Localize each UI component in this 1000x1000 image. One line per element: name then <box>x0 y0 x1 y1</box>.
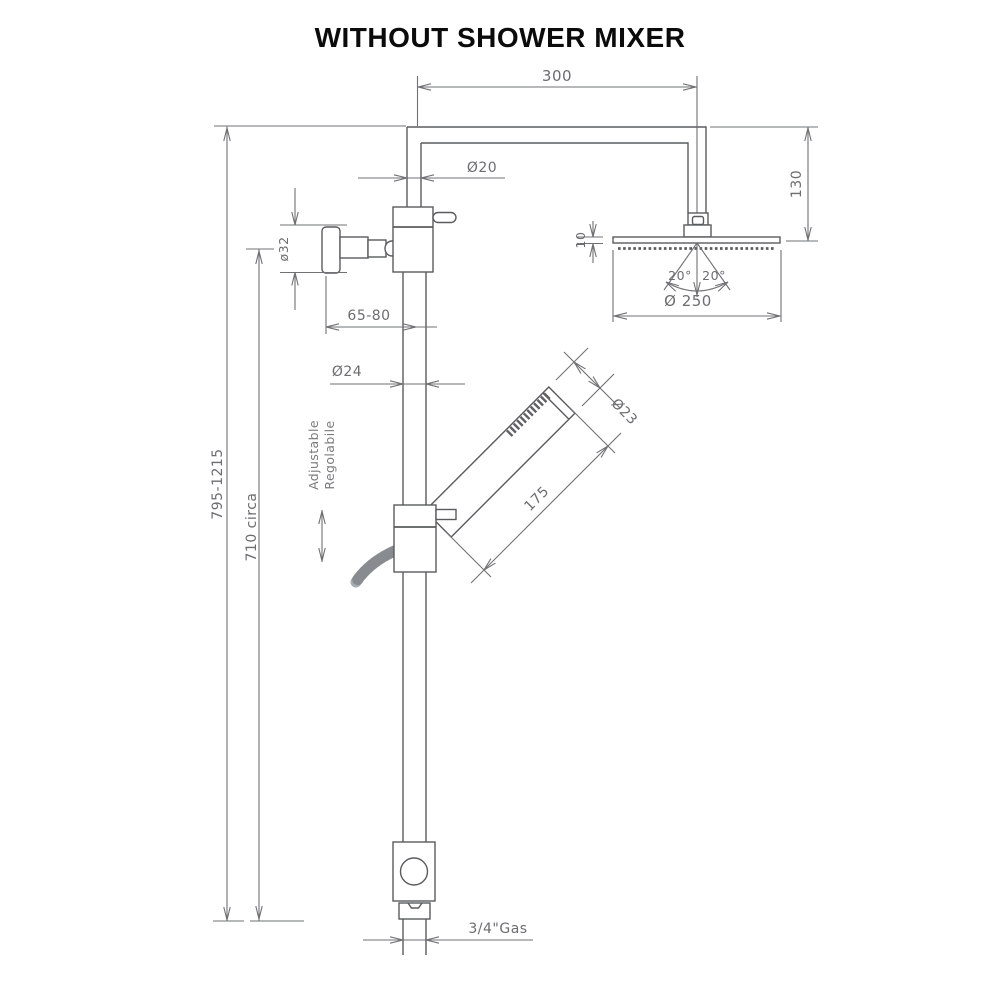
shower-head-plate <box>613 237 780 243</box>
wall-union-diameter-label: ø32 <box>276 236 291 261</box>
wall-clearance-label: 65-80 <box>347 308 390 324</box>
adjustable-note-it: Regolabile <box>322 420 337 489</box>
wall-union-diverter <box>322 207 456 273</box>
arm-pipe-diameter-label: Ø20 <box>467 160 497 176</box>
dim-head-drop: 130 <box>710 127 818 241</box>
column-diameter-label: Ø24 <box>332 364 362 380</box>
adjustable-note-en: Adjustable <box>306 420 321 490</box>
shower-column-and-arm <box>214 76 706 842</box>
dim-total-height: 795-1215 <box>210 126 244 921</box>
connection-port <box>401 858 428 885</box>
arm-length-label: 300 <box>542 67 572 85</box>
technical-drawing: 20° 20° Ø 250 10 300 <box>0 0 1000 1000</box>
dim-column-height: 710 circa <box>244 249 304 921</box>
dim-connection-thread: 3/4"Gas <box>363 921 533 943</box>
column-height-label: 710 circa <box>244 493 260 562</box>
wall-flange <box>322 227 340 273</box>
swivel-angle-right-label: 20° <box>702 268 726 283</box>
adjustable-note: Adjustable Regolabile <box>306 420 337 562</box>
dim-column-diameter: Ø24 <box>330 364 465 387</box>
shower-hose <box>356 549 399 582</box>
dim-head-thickness: 10 <box>573 221 603 263</box>
connection-nut <box>399 903 430 919</box>
bottom-wall-connection <box>393 842 435 955</box>
diverter-lever <box>433 213 456 223</box>
handshower-length-label: 175 <box>521 483 552 514</box>
dim-arm-length: 300 <box>417 67 697 90</box>
connection-thread-label: 3/4"Gas <box>468 921 527 937</box>
head-thickness-label: 10 <box>573 232 588 249</box>
diverter-body <box>393 207 433 272</box>
total-height-label: 795-1215 <box>210 448 226 519</box>
holder-pivot <box>436 510 456 520</box>
head-diameter-label: Ø 250 <box>664 292 712 310</box>
swivel-angle-left-label: 20° <box>668 268 692 283</box>
diagram-page: WITHOUT SHOWER MIXER <box>0 0 1000 1000</box>
dim-swivel-angle: 20° 20° <box>664 243 730 297</box>
dim-wall-clearance: 65-80 <box>326 276 437 334</box>
hand-shower-holder <box>394 505 456 572</box>
head-drop-label: 130 <box>789 170 805 198</box>
dim-arm-pipe-diameter: Ø20 <box>358 160 505 181</box>
